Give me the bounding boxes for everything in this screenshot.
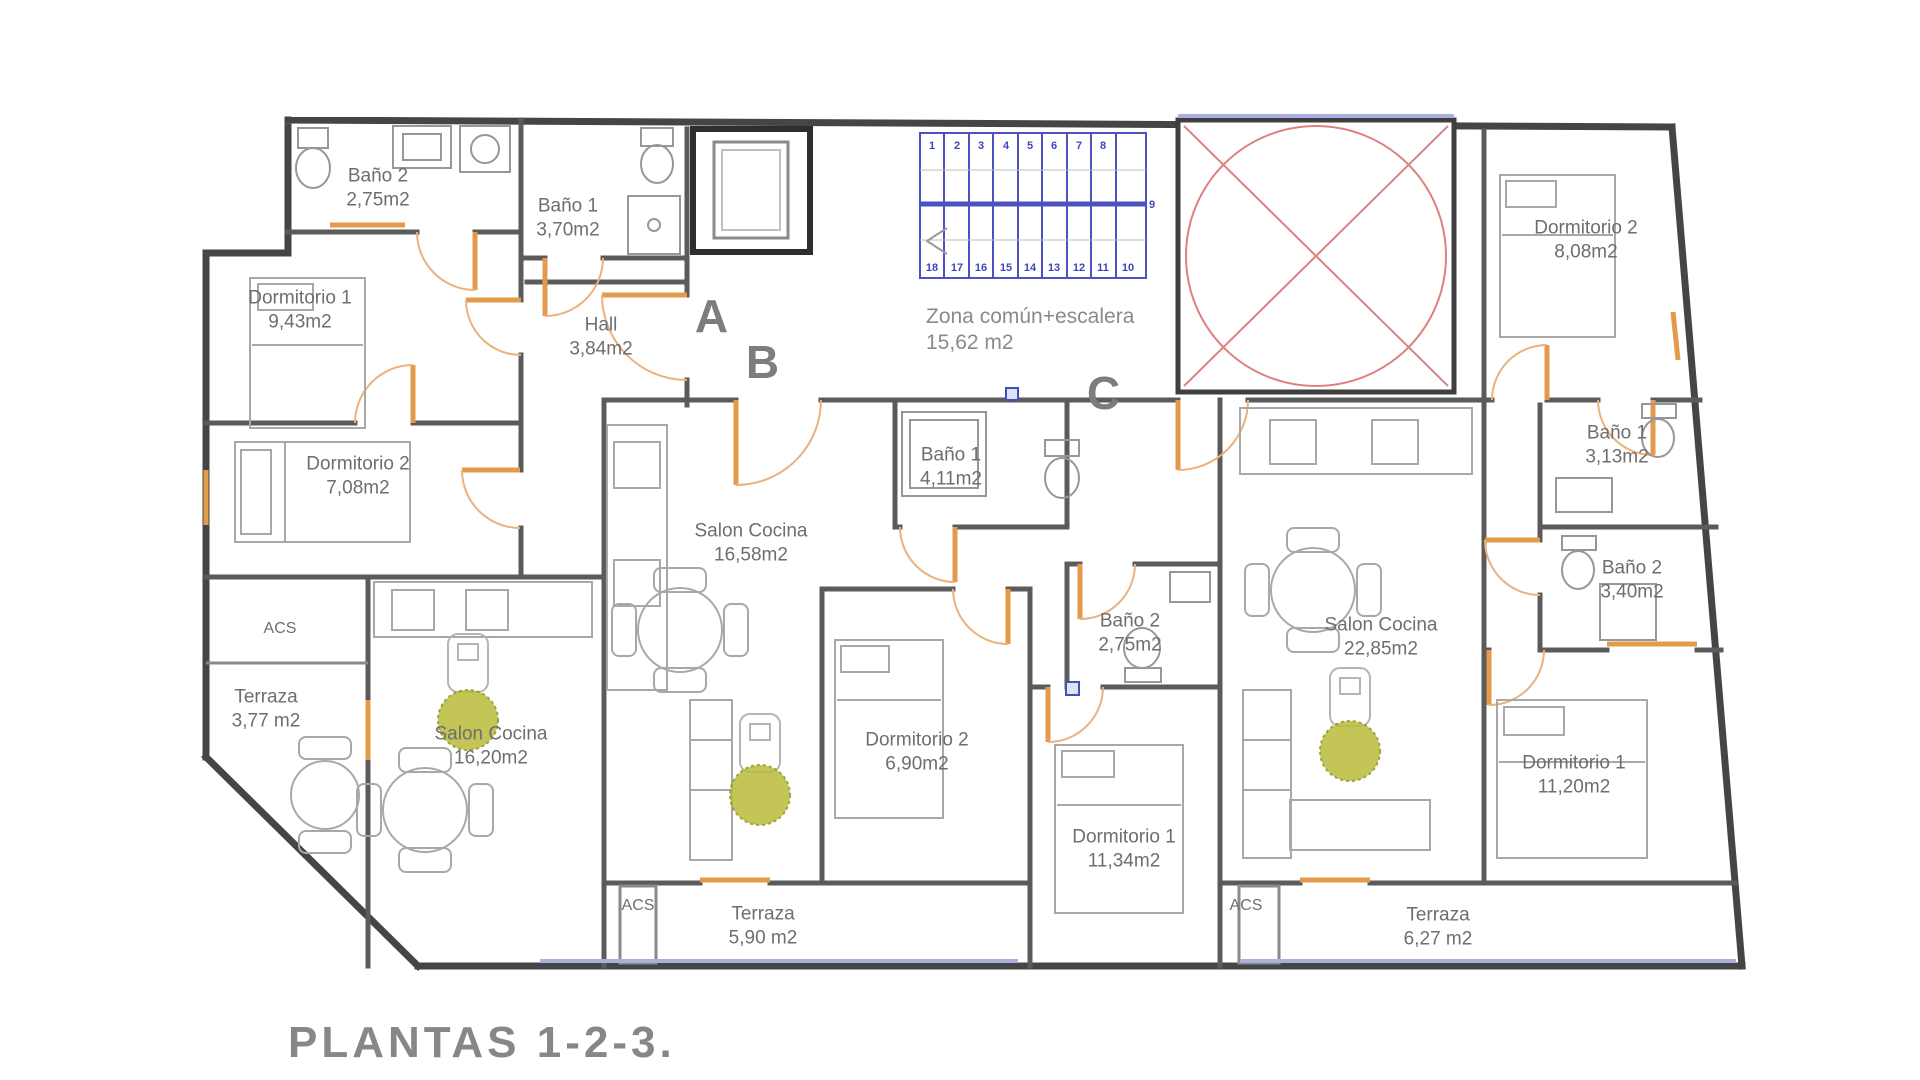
patio-shaft: [1178, 120, 1454, 392]
room-label-c-salon: Salon Cocina22,85m2: [1324, 613, 1437, 661]
room-label-a-hall: Hall3,84m2: [569, 313, 632, 361]
table-b-salon: [612, 568, 748, 692]
apartment-letter-a: A: [695, 289, 729, 343]
interior-walls: [206, 120, 1735, 966]
stair-number: 13: [1048, 262, 1060, 274]
table-a-terraza: [291, 737, 359, 853]
kitchen-b: [607, 425, 667, 690]
room-label-b-terraza: Terraza5,90 m2: [729, 902, 798, 950]
stair-number: 15: [1000, 262, 1012, 274]
room-label-c-terraza: Terraza6,27 m2: [1404, 903, 1473, 951]
room-label-a-salon: Salon Cocina16,20m2: [434, 722, 547, 770]
stair-number: 1: [929, 140, 935, 152]
kitchen-c: [1240, 408, 1472, 474]
room-label-b-dorm2: Dormitorio 26,90m2: [865, 728, 968, 776]
sheet-title: PLANTAS 1-2-3.: [288, 1018, 676, 1068]
stair-number: 2: [954, 140, 960, 152]
stair-number: 14: [1024, 262, 1036, 274]
room-label-a-terraza: Terraza3,77 m2: [232, 685, 301, 733]
room-label-c-acs: ACS: [1230, 896, 1263, 916]
stair-number: 6: [1051, 140, 1057, 152]
room-label-b-salon: Salon Cocina16,58m2: [694, 519, 807, 567]
floor-plan-page: Baño 22,75m2 Baño 13,70m2 Dormitorio 19,…: [0, 0, 1920, 1080]
room-label-c-dorm1: Dormitorio 111,20m2: [1522, 751, 1625, 799]
stair-number: 17: [951, 262, 963, 274]
plant-b-salon: [730, 714, 790, 825]
room-label-a-bano2: Baño 22,75m2: [346, 164, 409, 212]
room-label-a-bano1: Baño 13,70m2: [536, 194, 599, 242]
fixtures-a-bano1: [628, 128, 680, 254]
stair-number: 10: [1122, 262, 1134, 274]
stair-number-landing: 9: [1149, 199, 1155, 211]
room-label-b-dorm1: Dormitorio 111,34m2: [1072, 825, 1175, 873]
stair-number: 11: [1097, 262, 1109, 274]
room-label-c-bano1: Baño 13,13m2: [1585, 421, 1648, 469]
room-label-b-acs: ACS: [622, 896, 655, 916]
room-label-c-bano2: Baño 23,40m2: [1600, 556, 1663, 604]
room-label-c-dorm2: Dormitorio 28,08m2: [1534, 216, 1637, 264]
elevator: [693, 129, 810, 252]
stair-number: 12: [1073, 262, 1085, 274]
apartment-letter-b: B: [746, 335, 780, 389]
floor-plan-drawing: [0, 0, 1920, 1080]
room-label-b-bano1: Baño 14,11m2: [920, 443, 982, 491]
stair-number: 18: [926, 262, 938, 274]
furniture: [235, 126, 1676, 913]
stair-number: 4: [1003, 140, 1009, 152]
kitchen-a: [374, 582, 592, 637]
stair-number: 8: [1100, 140, 1106, 152]
stair-number: 3: [978, 140, 984, 152]
stair-number: 16: [975, 262, 987, 274]
staircase: [920, 133, 1146, 278]
room-label-b-bano2: Baño 22,75m2: [1098, 609, 1161, 657]
apartment-letter-c: C: [1087, 366, 1121, 420]
stair-number: 5: [1027, 140, 1033, 152]
room-label-a-acs: ACS: [264, 619, 297, 639]
exterior-walls: [206, 120, 1742, 966]
common-zone-label: Zona común+escalera15,62 m2: [926, 304, 1134, 357]
plant-c-salon: [1320, 668, 1380, 781]
room-label-a-dorm1: Dormitorio 19,43m2: [248, 286, 351, 334]
stair-number: 7: [1076, 140, 1082, 152]
room-label-a-dorm2: Dormitorio 27,08m2: [306, 452, 409, 500]
sofa-b-salon: [690, 700, 732, 860]
